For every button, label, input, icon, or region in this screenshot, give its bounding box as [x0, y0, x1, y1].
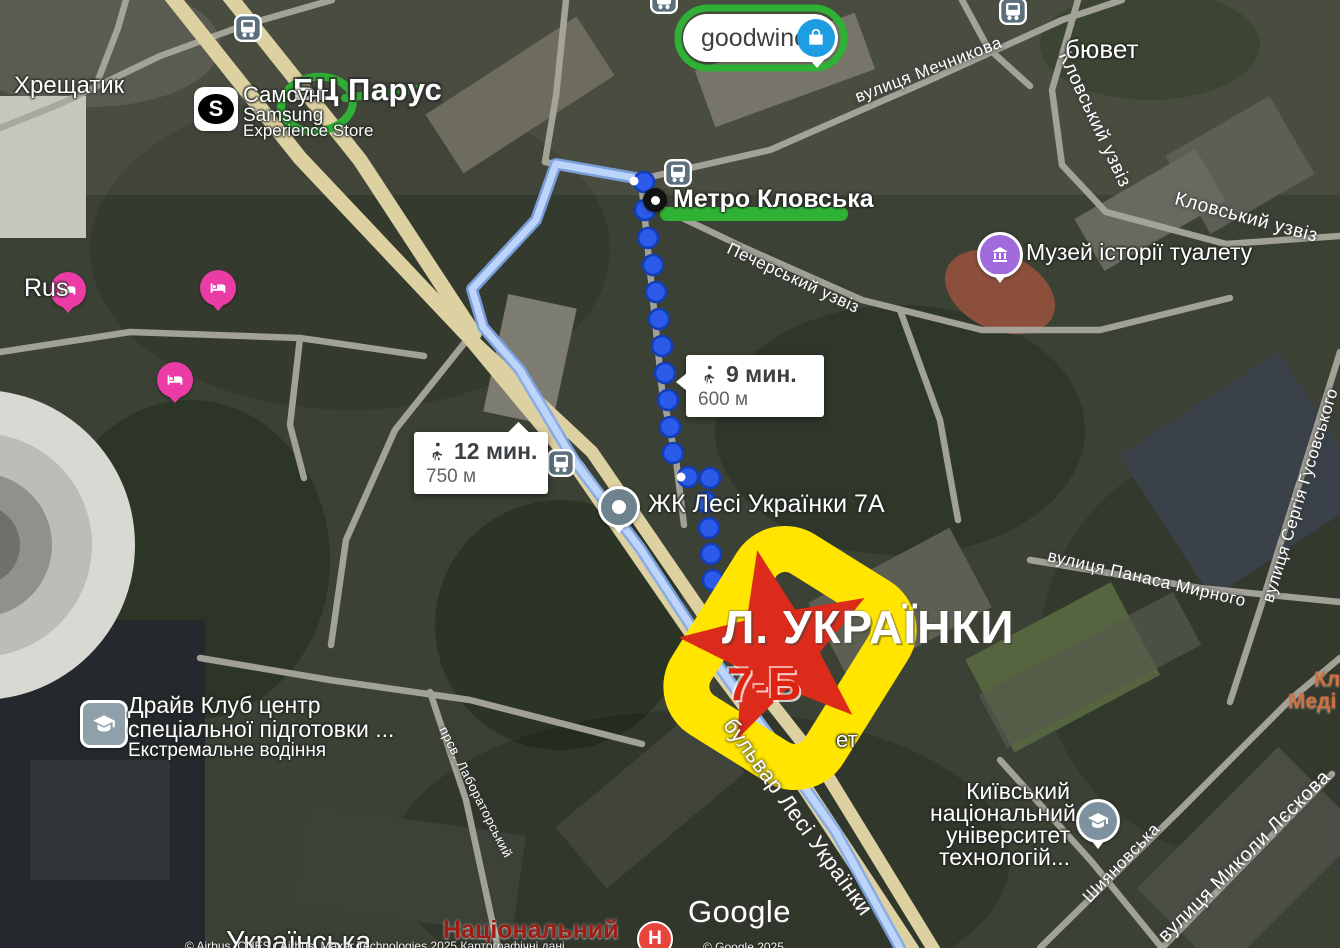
samsung-s-letter: S [209, 98, 224, 120]
destination-title: Л. УКРАЇНКИ [722, 600, 1014, 654]
label-fragment-et: ет [836, 727, 858, 753]
label-zhk[interactable]: ЖК Лесі Українки 7А [648, 490, 885, 519]
goodwine-poi[interactable]: goodwine [683, 14, 838, 62]
hotel-pin[interactable] [200, 270, 236, 306]
walking-person-icon [426, 441, 447, 462]
duration-alt: 12 мин. [454, 438, 537, 465]
hotel-pin[interactable] [157, 362, 193, 398]
bus-stop-icon[interactable] [234, 14, 262, 42]
bed-icon [207, 277, 229, 299]
shopping-bag-pin [797, 19, 835, 57]
destination-number: 7-Б [727, 657, 801, 711]
hospital-letter: H [648, 928, 662, 948]
route-bubble-alt[interactable]: 12 мин. 750 м [414, 432, 548, 494]
distance-alt: 750 м [426, 466, 538, 488]
graduation-cap-icon [1086, 809, 1110, 833]
zhk-pin[interactable] [598, 486, 640, 528]
duration-primary: 9 мин. [726, 361, 797, 388]
terrain-layer [0, 0, 1340, 948]
bubble-arrow-left [676, 373, 687, 391]
route-bubble-primary[interactable]: 9 мин. 600 м [686, 355, 824, 417]
metro-station-marker[interactable] [643, 188, 667, 212]
label-medical-2[interactable]: Меді [1288, 690, 1336, 714]
label-drive-club-2[interactable]: спеціальної підготовки ... [128, 716, 394, 743]
university-pin[interactable] [1076, 799, 1120, 843]
label-byuvet[interactable]: бювет [1065, 34, 1138, 65]
copyright-imagery: © Airbus, CNES / Airbus, Maxar Technolog… [185, 939, 565, 948]
bus-stop-icon[interactable] [999, 0, 1027, 25]
google-logo[interactable]: Google [688, 894, 791, 930]
museum-pin[interactable] [977, 232, 1023, 278]
drive-club-icon[interactable] [80, 700, 128, 748]
map-canvas[interactable]: S H goodwine Хрещатик БЦ Парус Самсунг S… [0, 0, 1340, 948]
walking-person-icon [698, 364, 719, 385]
pin-tail [810, 60, 824, 68]
dot-icon [651, 196, 660, 205]
bus-stop-icon[interactable] [650, 0, 678, 14]
label-drive-club-3[interactable]: Екстремальне водіння [128, 740, 326, 762]
satellite-base [0, 0, 1340, 948]
copyright-google: © Google 2025 [703, 940, 784, 948]
museum-icon [988, 243, 1012, 267]
samsung-logo[interactable]: S [194, 87, 238, 131]
label-khreshchatyk: Хрещатик [14, 72, 124, 100]
dot-icon [612, 500, 626, 514]
label-samsung-sub[interactable]: Experience Store [243, 121, 373, 141]
graduation-cap-icon [91, 711, 117, 737]
label-hotel-rus[interactable]: Rus [24, 274, 68, 303]
label-metro-klovska[interactable]: Метро Кловська [673, 185, 874, 214]
label-university-4[interactable]: технологій... [930, 844, 1070, 871]
label-medical-1[interactable]: Кл [1314, 668, 1340, 692]
distance-primary: 600 м [698, 389, 814, 411]
shopping-bag-icon [806, 28, 826, 48]
bus-stop-icon[interactable] [664, 159, 692, 187]
bus-stop-icon[interactable] [547, 449, 575, 477]
label-museum[interactable]: Музей історії туалету [1026, 239, 1252, 266]
bed-icon [164, 369, 186, 391]
goodwine-label: goodwine [683, 24, 808, 53]
label-drive-club-1[interactable]: Драйв Клуб центр [128, 692, 321, 719]
